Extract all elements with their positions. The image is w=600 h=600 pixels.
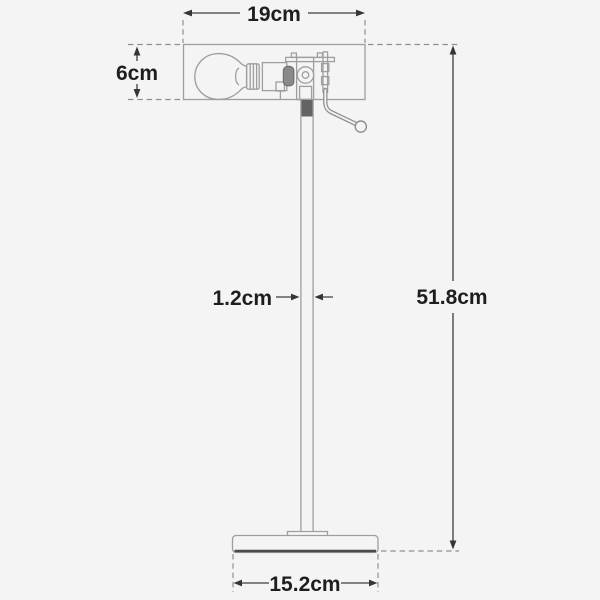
head-width-label: 19cm (247, 3, 301, 26)
crank-ball-knob (355, 121, 366, 132)
mounting-tab-right (317, 53, 322, 57)
lamp-base (233, 536, 379, 553)
base-width-arrow-left (234, 580, 243, 587)
head-width-arrow-left (183, 10, 192, 17)
head-height-label: 6cm (116, 62, 158, 85)
dimension-base-width: 15.2cm (233, 554, 378, 596)
pivot-joint (297, 67, 313, 83)
pole-collar (288, 532, 328, 536)
dimension-overall-height: 51.8cm (368, 45, 488, 552)
base-width-label: 15.2cm (269, 573, 340, 596)
overall-height-arrow-top (450, 46, 457, 55)
dimension-head-width: 19cm (183, 3, 365, 43)
pivot-joint-center (302, 72, 309, 79)
dimension-pole-diameter: 1.2cm (212, 287, 333, 310)
base-width-arrow-right (369, 580, 378, 587)
adjustment-knob (283, 66, 293, 85)
screw-threads (250, 64, 256, 89)
mounting-tab-left (291, 53, 296, 57)
overall-height-arrow-bottom (450, 541, 457, 550)
light-bulb-icon (195, 54, 247, 100)
pole-diameter-label: 1.2cm (212, 287, 272, 310)
pivot-bracket (297, 57, 314, 99)
overall-height-label: 51.8cm (416, 286, 487, 309)
pole-joint (301, 100, 314, 117)
bulb-inner-stem (236, 68, 239, 85)
crank-rod-outer (325, 90, 356, 124)
head-height-arrow-bottom (134, 89, 141, 98)
lamp-head-outline (184, 45, 366, 100)
head-height-arrow-top (134, 47, 141, 56)
bulb-screw-base (247, 64, 260, 89)
dimension-head-height: 6cm (116, 45, 181, 100)
bracket-opening (300, 86, 312, 99)
lamp-pole (301, 100, 313, 532)
crank-handle (325, 90, 366, 132)
lamp-dimension-diagram: 19cm 6cm 1.2cm 51.8cm 15.2cm (0, 0, 600, 600)
head-width-arrow-right (356, 10, 365, 17)
pole-diameter-arrow-left (291, 294, 300, 301)
pole-diameter-arrow-right (315, 294, 324, 301)
